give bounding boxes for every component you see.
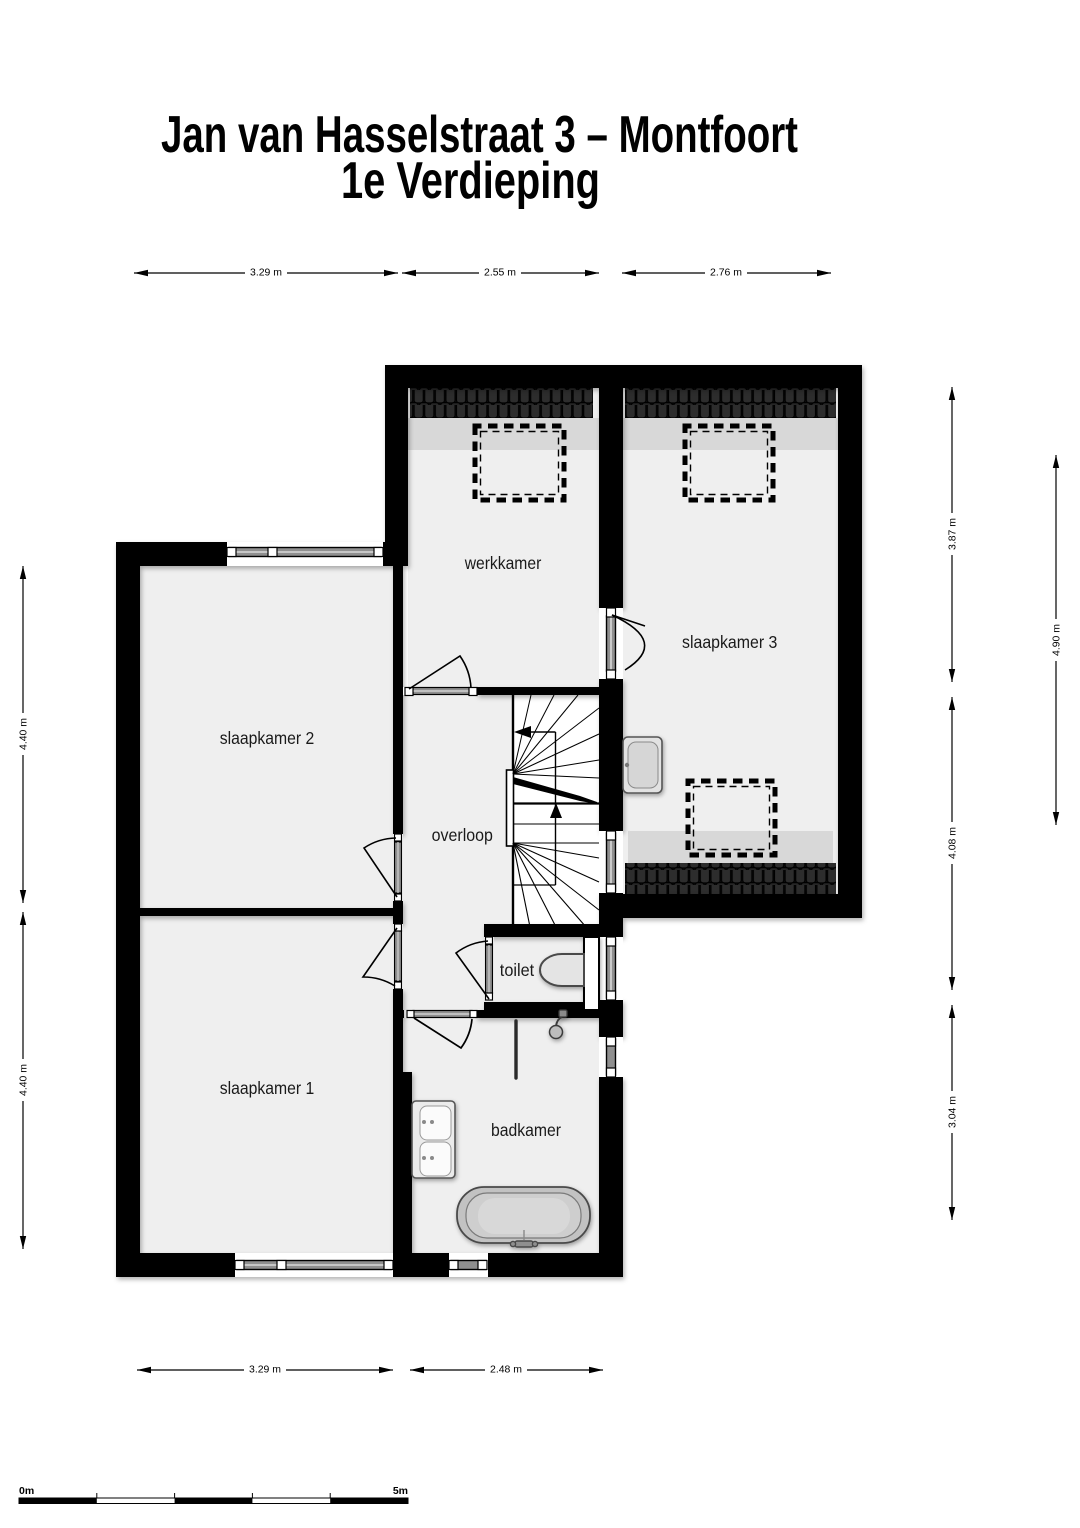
svg-text:3.29 m: 3.29 m [250,268,282,279]
svg-text:2.48 m: 2.48 m [490,1365,522,1376]
svg-text:4.40 m: 4.40 m [19,1064,30,1096]
svg-text:3.87 m: 3.87 m [948,518,959,550]
svg-text:2.55 m: 2.55 m [484,268,516,279]
svg-text:1e Verdieping: 1e Verdieping [341,152,600,210]
svg-text:3.04 m: 3.04 m [948,1096,959,1128]
svg-text:badkamer: badkamer [491,1120,561,1140]
svg-text:slaapkamer 1: slaapkamer 1 [220,1078,315,1098]
svg-text:4.90 m: 4.90 m [1052,624,1063,656]
svg-text:2.76 m: 2.76 m [710,268,742,279]
svg-text:3.29 m: 3.29 m [249,1365,281,1376]
svg-text:4.40 m: 4.40 m [19,718,30,750]
svg-text:5m: 5m [393,1485,408,1497]
svg-text:overloop: overloop [432,825,493,845]
svg-text:werkkamer: werkkamer [464,553,542,573]
svg-text:toilet: toilet [500,960,535,980]
svg-text:slaapkamer 3: slaapkamer 3 [682,632,777,652]
svg-text:4.08 m: 4.08 m [948,827,959,859]
svg-text:0m: 0m [19,1485,34,1497]
svg-text:slaapkamer 2: slaapkamer 2 [220,728,315,748]
